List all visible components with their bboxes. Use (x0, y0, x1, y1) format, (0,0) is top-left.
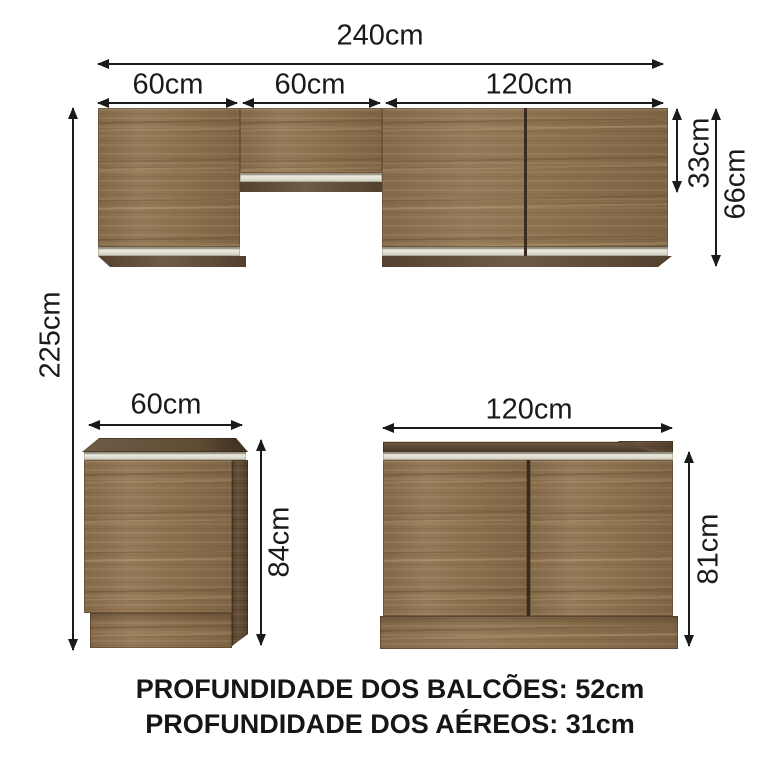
upper-small-height-arrow-icon (676, 109, 678, 192)
overall-height-arrow-icon (72, 108, 74, 650)
base-right-height-arrow-icon (688, 452, 690, 646)
base-cabinet-left-handle-strip (84, 452, 246, 460)
base-cabinet-right-plinth (380, 616, 678, 649)
base-left-width-label: 60cm (131, 391, 202, 420)
base-cabinet-left-door (84, 460, 232, 613)
base-right-height-label: 81cm (695, 514, 724, 585)
upper-cabinet-middle-door (240, 108, 382, 173)
base-cabinet-left-toe-kick (90, 613, 232, 648)
upper-cabinet-left-underside (98, 256, 246, 267)
overall-height-label: 225cm (37, 291, 66, 378)
total-width-label: 240cm (336, 22, 423, 51)
section3-width-arrow-icon (386, 102, 663, 104)
upper-small-height-label: 33cm (686, 118, 715, 189)
upper-cabinet-left-handle-strip (98, 247, 240, 256)
base-cabinet-right-door-left (383, 460, 527, 616)
upper-large-height-arrow-icon (715, 109, 717, 266)
base-left-height-label: 84cm (266, 507, 295, 578)
base-cabinet-right-handle-strip (383, 452, 673, 460)
upper-cabinet-right (382, 108, 668, 256)
section2-width-arrow-icon (243, 102, 380, 104)
upper-large-height-label: 66cm (722, 149, 751, 220)
section2-width-label: 60cm (275, 71, 346, 100)
base-cabinet-right (383, 441, 673, 648)
base-left-height-arrow-icon (260, 440, 262, 645)
upper-cabinet-middle-handle-strip (240, 173, 382, 182)
counter-depth-note: PROFUNDIDADE DOS BALCÕES: 52cm (0, 672, 780, 707)
upper-cabinet-middle (240, 108, 382, 182)
base-right-width-arrow-icon (383, 427, 672, 429)
upper-cabinet-right-door-divider (524, 108, 527, 256)
base-cabinet-right-door-right (530, 460, 673, 616)
upper-cabinet-right-underside (382, 256, 672, 267)
upper-cabinet-left (98, 108, 240, 256)
wall-cabinet-depth-note: PROFUNDIDADE DOS AÉREOS: 31cm (0, 707, 780, 742)
kitchen-dimensions-diagram: 240cm 60cm 60cm 120cm 33cm 66cm 225cm 60… (0, 0, 780, 780)
base-cabinet-right-doors (383, 460, 673, 616)
section1-width-arrow-icon (98, 102, 237, 104)
base-cabinet-left-countertop (82, 438, 248, 452)
base-cabinet-left (82, 438, 248, 648)
section3-width-label: 120cm (485, 71, 572, 100)
section1-width-label: 60cm (133, 71, 204, 100)
total-width-arrow-icon (98, 63, 663, 65)
base-left-width-arrow-icon (89, 424, 242, 426)
upper-cabinet-left-door (98, 108, 240, 247)
depth-notes: PROFUNDIDADE DOS BALCÕES: 52cm PROFUNDID… (0, 672, 780, 742)
base-cabinet-left-side-panel (232, 460, 248, 646)
base-right-width-label: 120cm (485, 396, 572, 425)
upper-cabinet-middle-underside (240, 182, 384, 192)
